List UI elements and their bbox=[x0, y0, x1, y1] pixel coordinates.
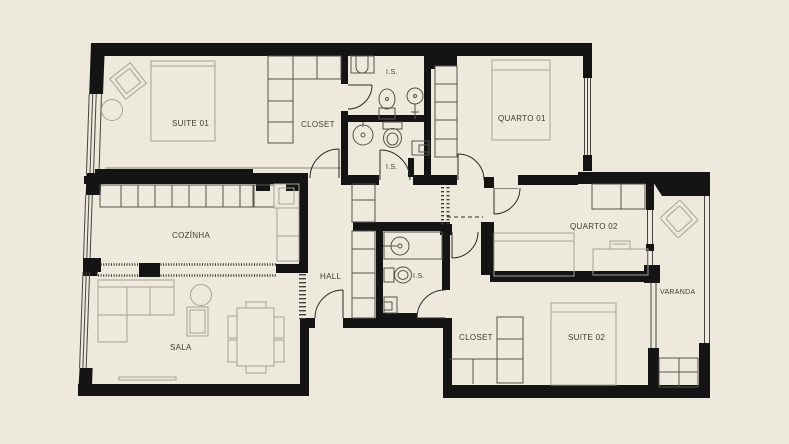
svg-text:SALA: SALA bbox=[170, 343, 192, 352]
svg-text:CLOSET: CLOSET bbox=[301, 120, 335, 129]
svg-text:I.S.: I.S. bbox=[386, 69, 398, 76]
svg-text:VARANDA: VARANDA bbox=[660, 289, 695, 296]
svg-text:HALL: HALL bbox=[320, 272, 341, 281]
svg-text:CLOSET: CLOSET bbox=[459, 333, 493, 342]
svg-text:I.S.: I.S. bbox=[413, 273, 425, 280]
svg-text:SUITE 01: SUITE 01 bbox=[172, 119, 209, 128]
svg-text:SUITE 02: SUITE 02 bbox=[568, 333, 605, 342]
svg-text:COZÍNHA: COZÍNHA bbox=[172, 231, 210, 240]
svg-text:I.S.: I.S. bbox=[386, 164, 398, 171]
svg-text:QUARTO 02: QUARTO 02 bbox=[570, 222, 618, 231]
svg-text:QUARTO 01: QUARTO 01 bbox=[498, 114, 546, 123]
